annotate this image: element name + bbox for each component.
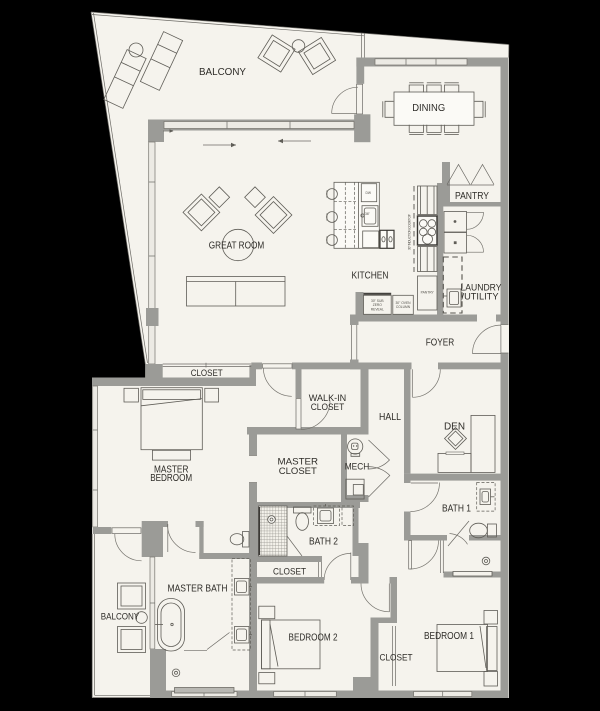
svg-text:FOYER: FOYER [426,337,455,348]
svg-text:GREAT ROOM: GREAT ROOM [209,241,265,252]
svg-text:/UTILITY: /UTILITY [462,291,499,301]
svg-text:36": 36" [365,212,371,216]
svg-text:30" INDUCTION COOKTOP: 30" INDUCTION COOKTOP [408,213,412,250]
svg-text:BEDROOM 2: BEDROOM 2 [289,633,338,644]
svg-text:DINING: DINING [412,103,445,114]
svg-text:HALL: HALL [379,412,401,423]
svg-text:PANTRY: PANTRY [455,191,489,202]
svg-text:CLOSET: CLOSET [191,368,223,378]
svg-text:CLOSET: CLOSET [273,567,306,577]
svg-text:CLOSET: CLOSET [380,652,413,662]
svg-text:BATH 2: BATH 2 [309,537,338,548]
svg-text:DEN: DEN [444,421,465,432]
svg-text:PANTRY: PANTRY [421,291,435,295]
svg-text:KITCHEN: KITCHEN [352,270,389,281]
svg-text:REVEAL: REVEAL [371,307,384,311]
svg-text:BEDROOM 1: BEDROOM 1 [424,631,474,642]
svg-text:BALCONY: BALCONY [101,611,140,621]
svg-text:DW: DW [366,191,372,195]
svg-text:BALCONY: BALCONY [199,67,246,78]
svg-text:CLOSET: CLOSET [311,402,345,412]
svg-text:MASTER: MASTER [278,457,319,467]
svg-text:COLUMN: COLUMN [396,305,411,309]
svg-text:MECH: MECH [345,462,370,472]
svg-text:BEDROOM: BEDROOM [150,473,192,484]
svg-text:CLOSET: CLOSET [279,466,317,476]
svg-text:MASTER BATH: MASTER BATH [168,583,228,594]
svg-text:BATH 1: BATH 1 [442,504,471,515]
